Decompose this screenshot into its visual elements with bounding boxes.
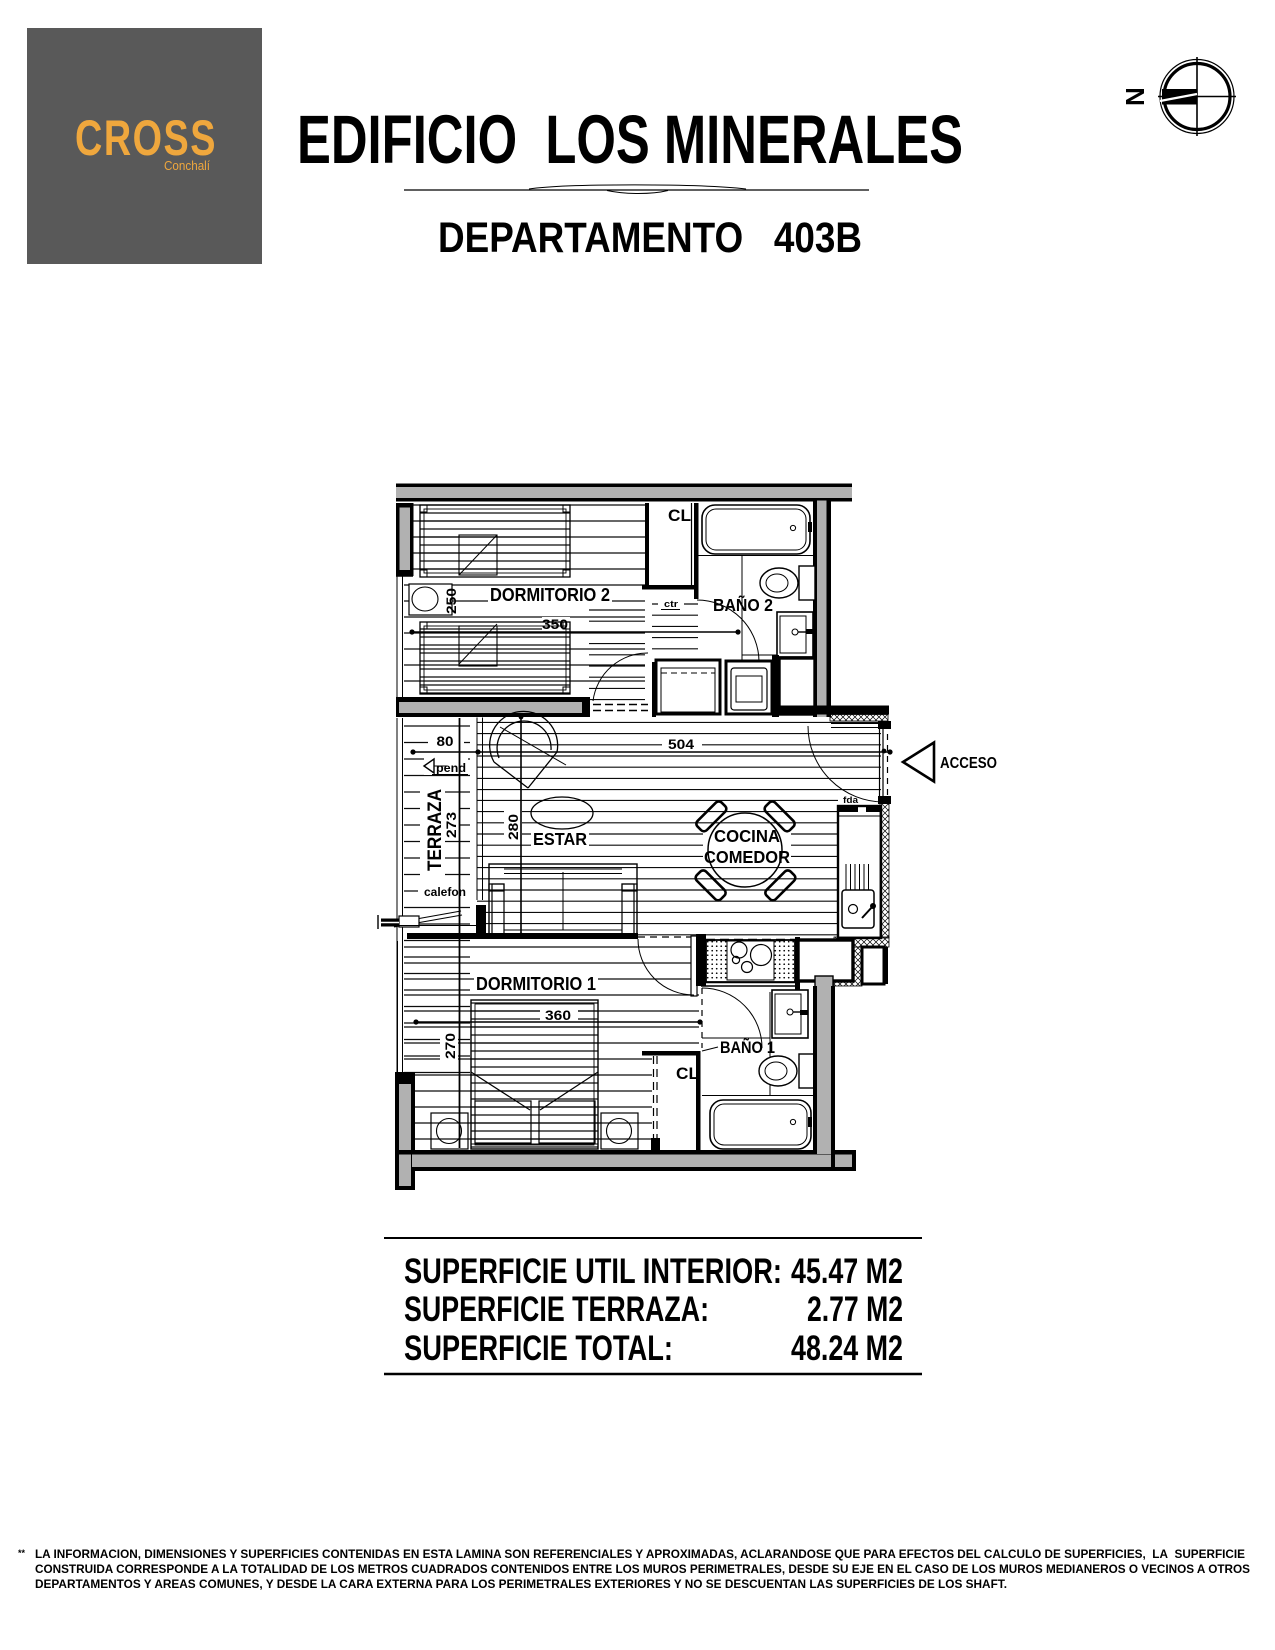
svg-text:SUPERFICIE TERRAZA:: SUPERFICIE TERRAZA: bbox=[404, 1290, 709, 1329]
svg-text:CL: CL bbox=[668, 506, 691, 525]
svg-text:BAÑO 2: BAÑO 2 bbox=[713, 594, 773, 615]
svg-text:270: 270 bbox=[443, 1033, 458, 1059]
svg-text:DORMITORIO 2: DORMITORIO 2 bbox=[490, 584, 610, 605]
svg-text:DEPARTAMENTOS Y AREAS COMUNES,: DEPARTAMENTOS Y AREAS COMUNES, Y DESDE L… bbox=[35, 1579, 1007, 1591]
svg-text:80: 80 bbox=[437, 734, 454, 749]
svg-text:calefon: calefon bbox=[424, 885, 466, 899]
svg-text:EDIFICIO LOS MINERALES: EDIFICIO LOS MINERALES bbox=[297, 101, 963, 178]
svg-text:ctr: ctr bbox=[664, 599, 678, 610]
svg-text:DORMITORIO 1: DORMITORIO 1 bbox=[476, 973, 596, 994]
svg-text:fda: fda bbox=[843, 795, 859, 806]
svg-text:280: 280 bbox=[506, 814, 521, 840]
svg-text:45.47 M2: 45.47 M2 bbox=[791, 1252, 903, 1291]
svg-text:SUPERFICIE UTIL INTERIOR:: SUPERFICIE UTIL INTERIOR: bbox=[404, 1252, 782, 1291]
svg-text:LA INFORMACION, DIMENSIONES Y: LA INFORMACION, DIMENSIONES Y SUPERFICIE… bbox=[35, 1549, 1245, 1561]
svg-text:250: 250 bbox=[444, 588, 459, 614]
svg-text:N: N bbox=[1120, 87, 1150, 106]
svg-text:COCINA: COCINA bbox=[714, 826, 780, 846]
svg-text:48.24 M2: 48.24 M2 bbox=[791, 1329, 903, 1368]
svg-text:ACCESO: ACCESO bbox=[940, 755, 997, 772]
svg-text:DEPARTAMENTO 403B: DEPARTAMENTO 403B bbox=[438, 214, 862, 262]
svg-text:pend: pend bbox=[436, 761, 466, 775]
svg-text:SUPERFICIE TOTAL:: SUPERFICIE TOTAL: bbox=[404, 1329, 673, 1368]
svg-text:COMEDOR: COMEDOR bbox=[704, 847, 790, 867]
svg-text:350: 350 bbox=[542, 617, 568, 632]
svg-text:ESTAR: ESTAR bbox=[533, 829, 587, 849]
svg-text:**: ** bbox=[18, 1548, 26, 1558]
svg-text:504: 504 bbox=[668, 737, 695, 752]
svg-text:273: 273 bbox=[444, 811, 459, 838]
svg-text:CONSTRUIDA CORRESPONDE A LA TO: CONSTRUIDA CORRESPONDE A LA TOTALIDAD DE… bbox=[35, 1564, 1250, 1576]
svg-text:TERRAZA: TERRAZA bbox=[425, 789, 446, 871]
svg-text:360: 360 bbox=[545, 1008, 571, 1023]
svg-text:BAÑO 1: BAÑO 1 bbox=[720, 1037, 775, 1057]
svg-text:2.77 M2: 2.77 M2 bbox=[807, 1290, 903, 1329]
svg-text:Conchalí: Conchalí bbox=[164, 158, 210, 173]
svg-text:CL: CL bbox=[676, 1064, 699, 1083]
